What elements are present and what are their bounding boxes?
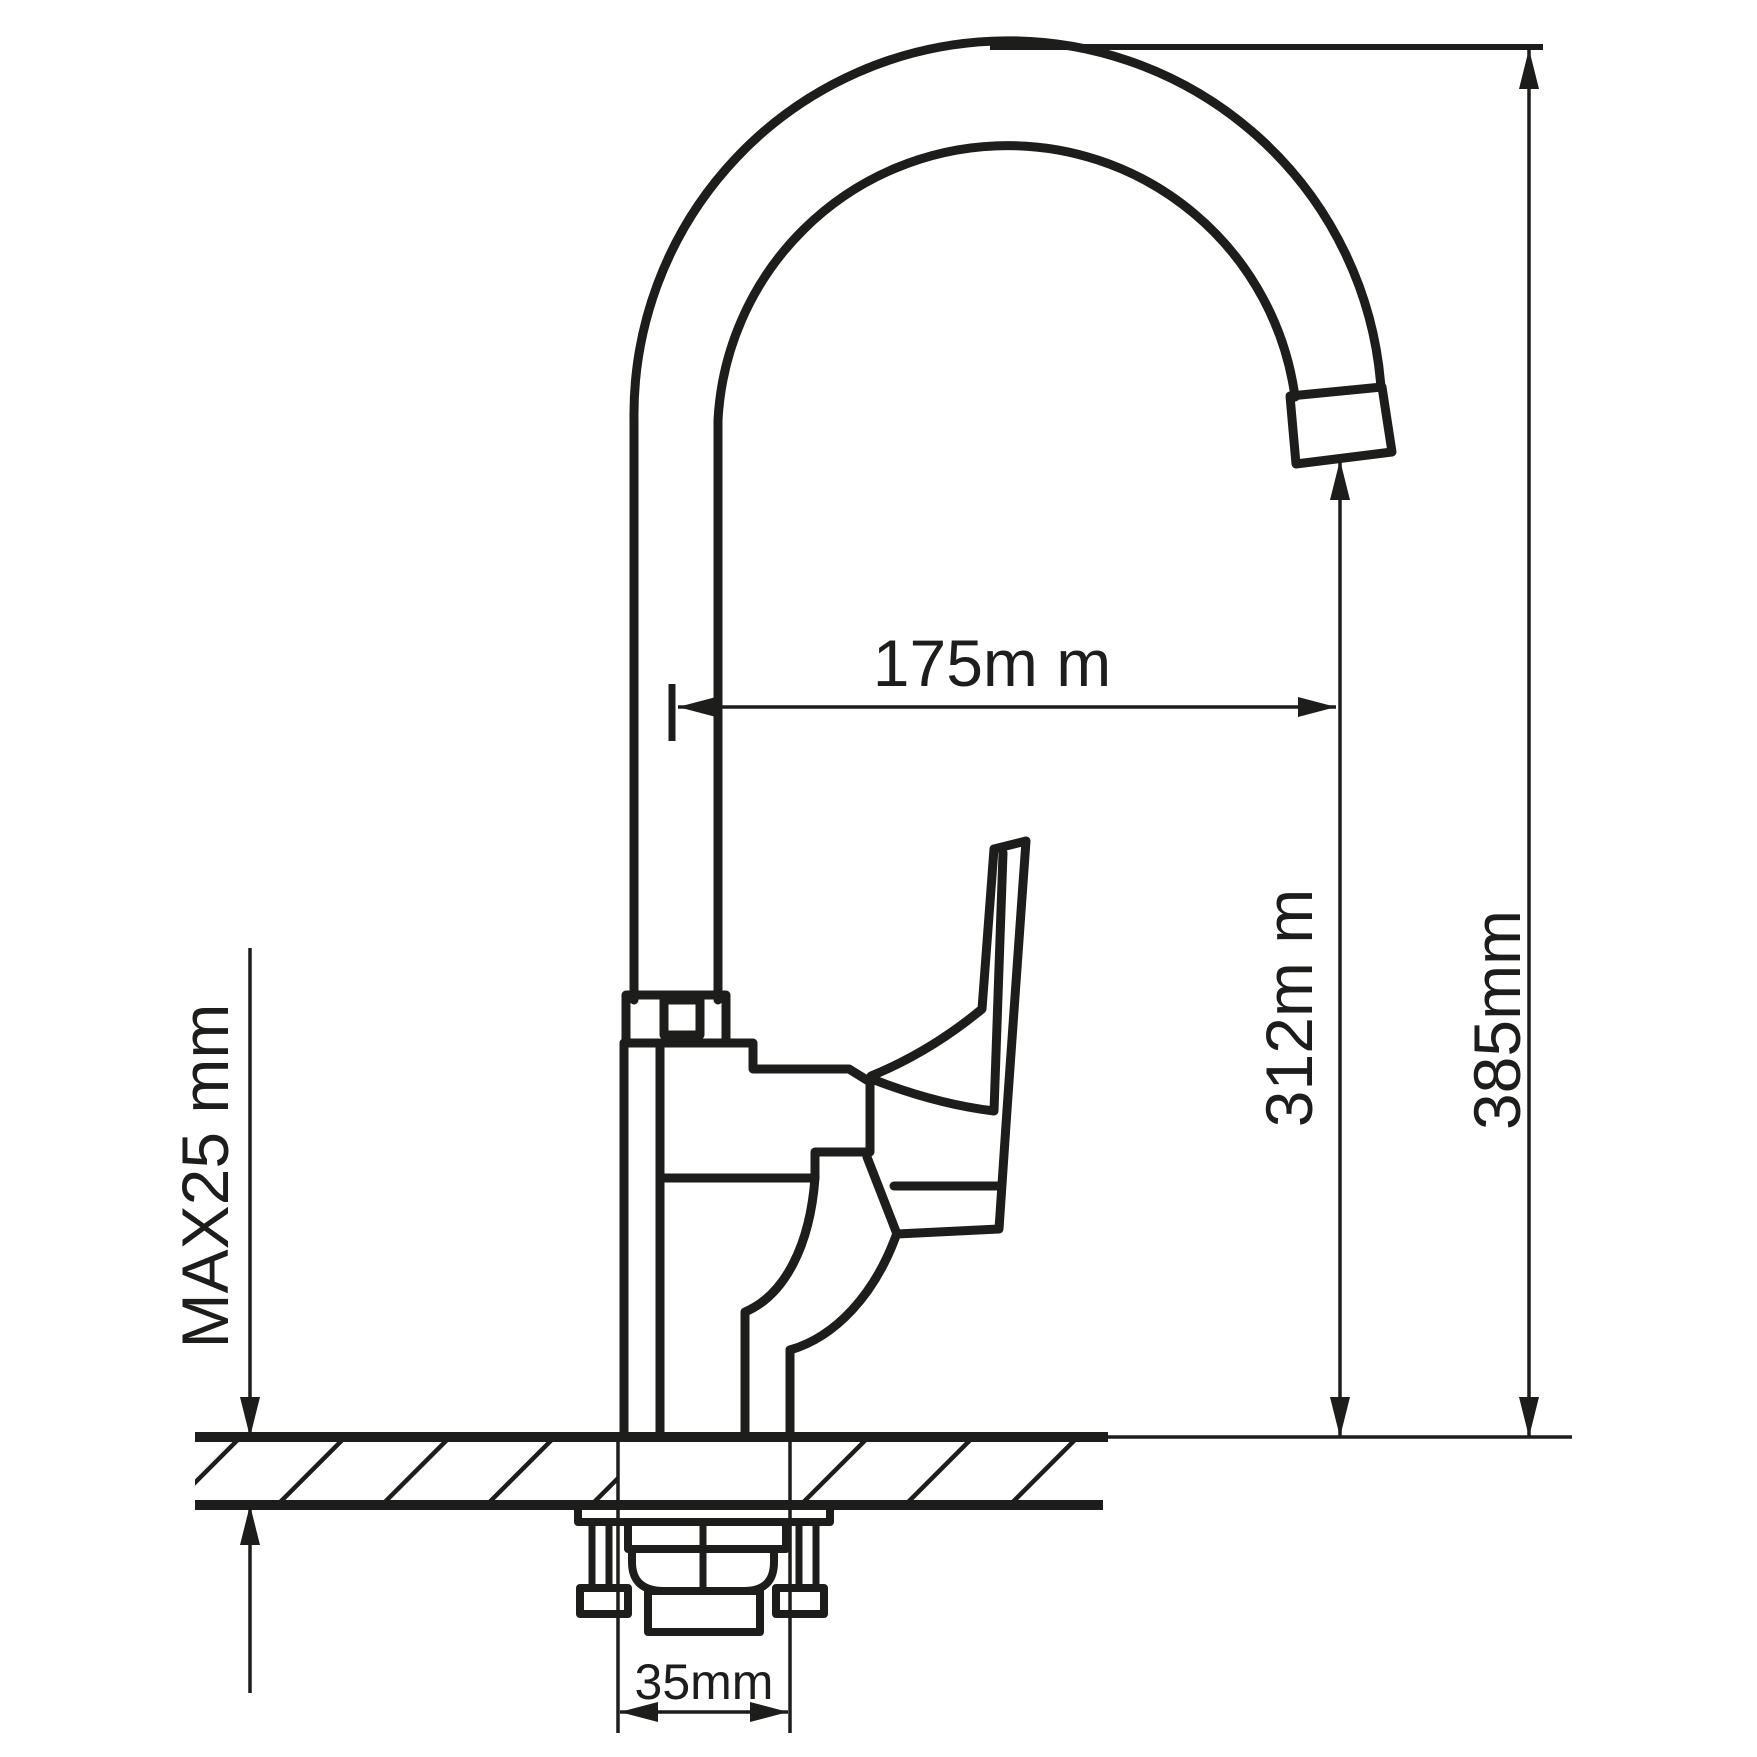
spout-aerator (1290, 387, 1392, 464)
shank-upper (628, 1522, 786, 1549)
spout-outer-edge (634, 41, 1381, 1000)
dimension-outlet-height: 312m m (1252, 460, 1350, 1437)
body-neck-outer-curve (790, 1233, 897, 1434)
arrow-down-icon (1330, 1397, 1350, 1437)
countertop-hatch-right (790, 1437, 1105, 1505)
collar-detail (664, 1000, 700, 1035)
overall-height-label: 385mm (1460, 910, 1534, 1130)
faucet-technical-drawing: 175m m 312m m 385mm MAX25 mm 35mm (0, 0, 1757, 1757)
faucet-technical-drawing-page: 175m m 312m m 385mm MAX25 mm 35mm (0, 0, 1757, 1757)
gooseneck-spout (634, 41, 1381, 1000)
countertop-section (195, 1437, 1108, 1505)
max-thickness-label: MAX25 mm (168, 1004, 242, 1349)
outlet-height-label: 312m m (1252, 889, 1326, 1127)
mounting-hole-label: 35mm (635, 1654, 774, 1710)
arrow-up-icon (240, 1505, 260, 1545)
handle-blade-left-edge (871, 849, 994, 1076)
stud-nut-left (580, 1588, 628, 1614)
mounting-hardware (578, 1505, 830, 1632)
arrow-right-icon (1298, 697, 1336, 717)
spout-collar (626, 995, 726, 1043)
dimension-max-thickness: MAX25 mm (168, 948, 260, 1693)
supply-nipple (648, 1591, 760, 1632)
arrow-left-icon (678, 697, 716, 717)
stud-nut-right (776, 1588, 824, 1614)
faucet-body (624, 1043, 897, 1434)
dimension-overall-height: 385mm (990, 47, 1572, 1437)
arrow-up-icon (1330, 460, 1350, 500)
dimension-spout-reach: 175m m (672, 626, 1336, 741)
lever-handle (867, 841, 1026, 1234)
arrow-down-icon (1519, 1397, 1539, 1437)
countertop-hatch-left (195, 1437, 618, 1505)
body-neck-inner-curve (745, 1178, 815, 1434)
arrow-up-icon (1519, 49, 1539, 89)
arrow-down-icon (240, 1397, 260, 1437)
faucet-outline (624, 41, 1392, 1434)
spout-reach-label: 175m m (873, 626, 1111, 700)
